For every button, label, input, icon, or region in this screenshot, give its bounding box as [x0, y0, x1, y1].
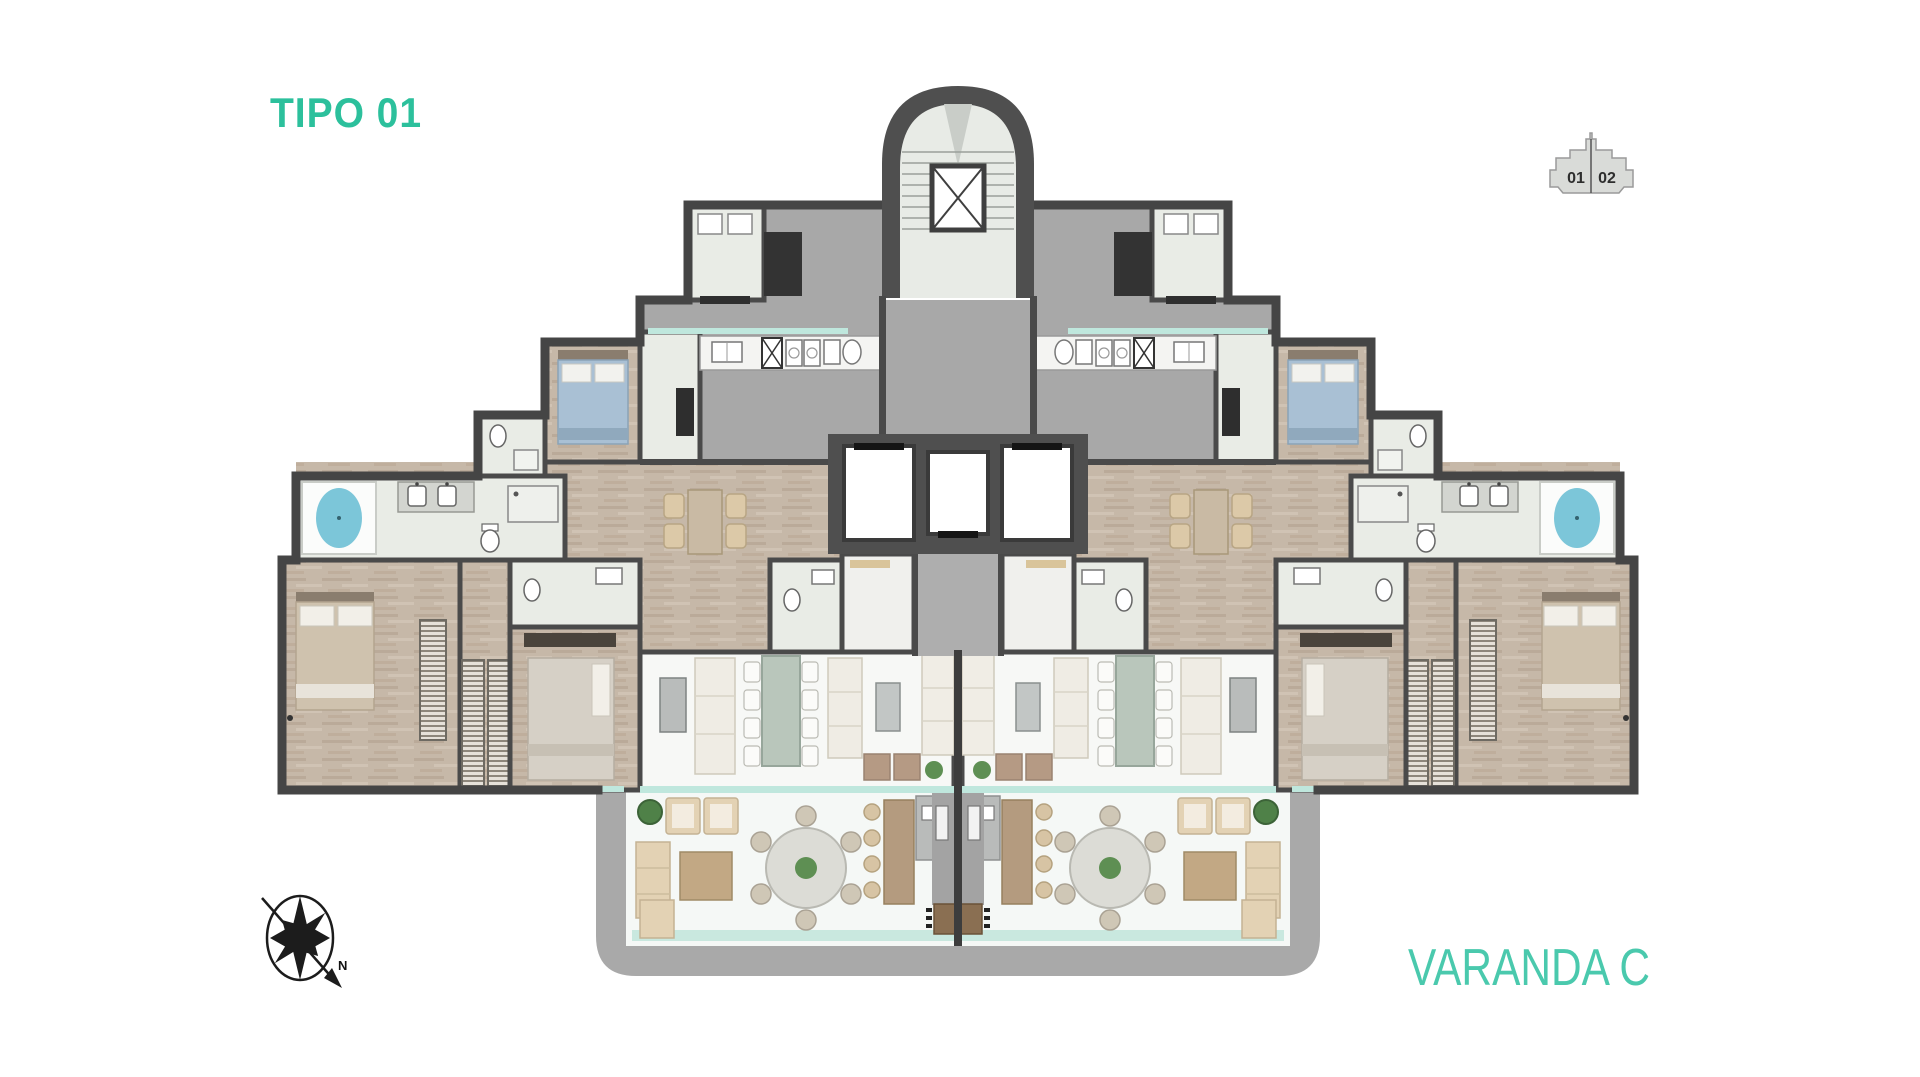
elevator-door — [854, 443, 904, 450]
stair-tower — [882, 86, 1034, 298]
core-wall — [1030, 296, 1037, 438]
elevator-core — [828, 434, 1088, 554]
floorplan-canvas: TIPO 01 01 02 N VARANDA C — [0, 0, 1920, 1077]
elevator-shaft — [1002, 446, 1072, 540]
floorplan-page: TIPO 01 01 02 N VARANDA C — [0, 0, 1920, 1077]
balcony-label: VARANDA C — [1408, 939, 1650, 997]
elevator-shaft — [844, 446, 914, 540]
key-plan-unit-01: 01 — [1567, 170, 1585, 187]
elevator-door — [1012, 443, 1062, 450]
key-plan-unit-02: 02 — [1598, 170, 1616, 187]
north-label: N — [338, 958, 347, 973]
central-hallway — [912, 554, 1004, 656]
plan-type-title: TIPO 01 — [270, 89, 422, 136]
elevator-door — [938, 531, 978, 538]
core-wall — [879, 296, 886, 438]
elevator-shaft — [928, 452, 988, 534]
party-wall — [954, 650, 962, 946]
